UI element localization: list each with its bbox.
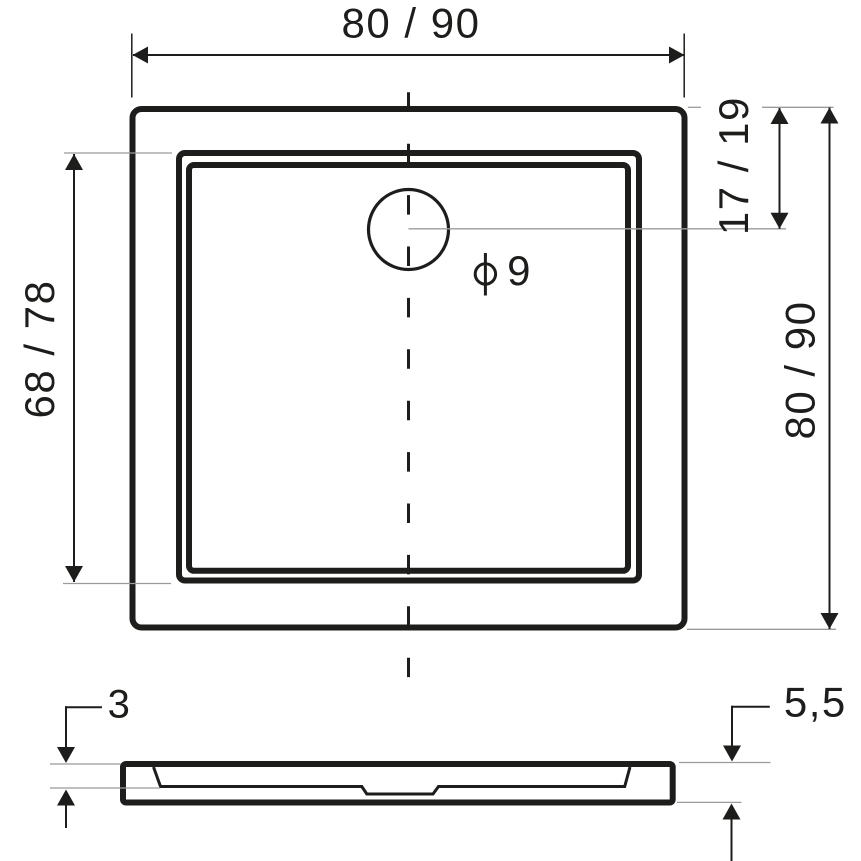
svg-text:80 / 90: 80 / 90 — [777, 301, 824, 440]
svg-text:9: 9 — [507, 247, 532, 294]
svg-text:17 / 19: 17 / 19 — [710, 96, 757, 235]
svg-text:68 / 78: 68 / 78 — [16, 280, 63, 419]
svg-text:80 / 90: 80 / 90 — [342, 0, 481, 47]
svg-text:3: 3 — [108, 683, 132, 727]
svg-text:5,5: 5,5 — [784, 679, 847, 726]
